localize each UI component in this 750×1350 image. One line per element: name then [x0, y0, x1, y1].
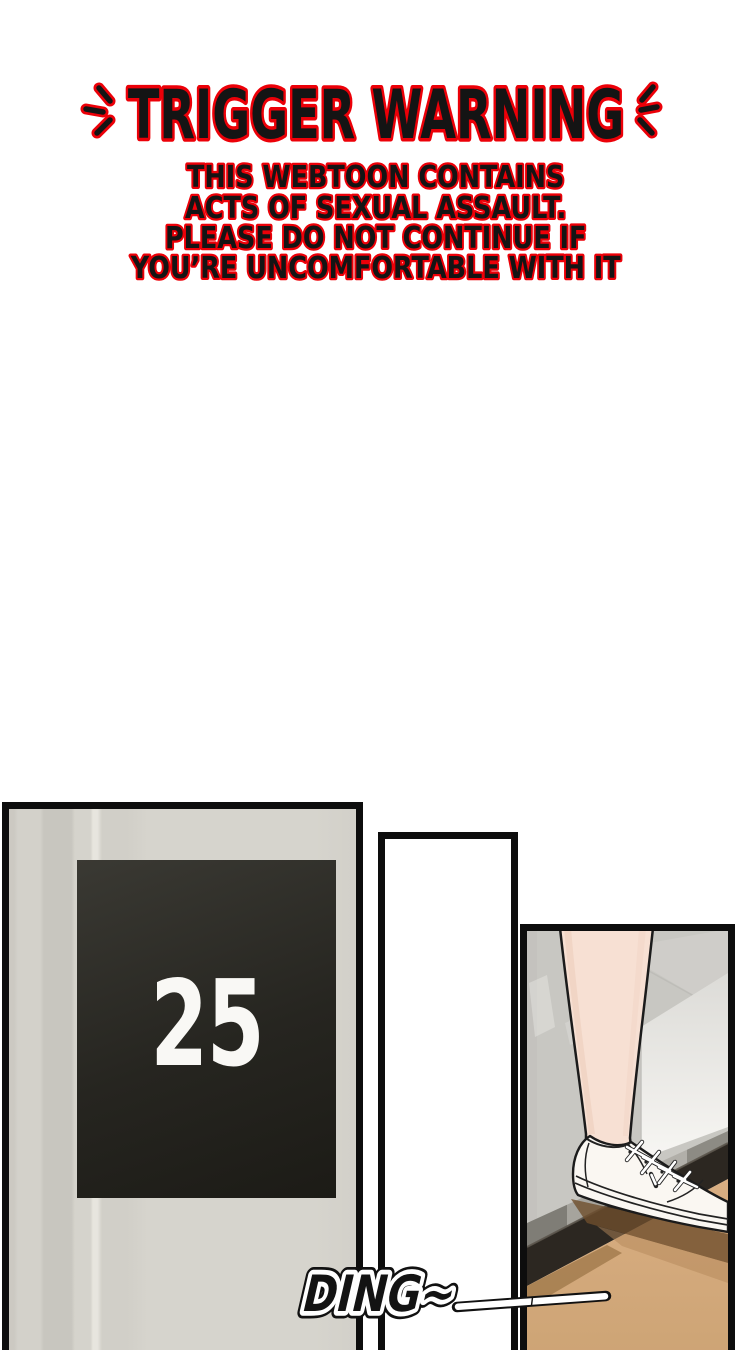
emphasis-marks-left-icon: [86, 88, 110, 133]
sfx-dash-icon: [457, 1296, 606, 1307]
sfx-overlay: DING~ DING~ DING~: [255, 1243, 635, 1350]
sfx-ding-fill: DING~: [297, 1265, 462, 1323]
warning-line: YOU’RE UNCOMFORTABLE WITH IT: [130, 250, 621, 286]
sfx-ding-text: DING~ DING~ DING~: [297, 1265, 462, 1323]
floor-indicator-sign: 25: [77, 860, 336, 1198]
trigger-warning-title: TRIGGER WARNING: [128, 75, 624, 155]
emphasis-marks-right-icon: [640, 87, 657, 133]
trigger-warning-body: THIS WEBTOON CONTAINS ACTS OF SEXUAL ASS…: [130, 159, 621, 286]
trigger-warning-section: TRIGGER WARNING THIS WEBTOON CONTAINS AC…: [0, 0, 750, 320]
floor-number: 25: [150, 966, 263, 1085]
comic-page: TRIGGER WARNING THIS WEBTOON CONTAINS AC…: [0, 0, 750, 1350]
